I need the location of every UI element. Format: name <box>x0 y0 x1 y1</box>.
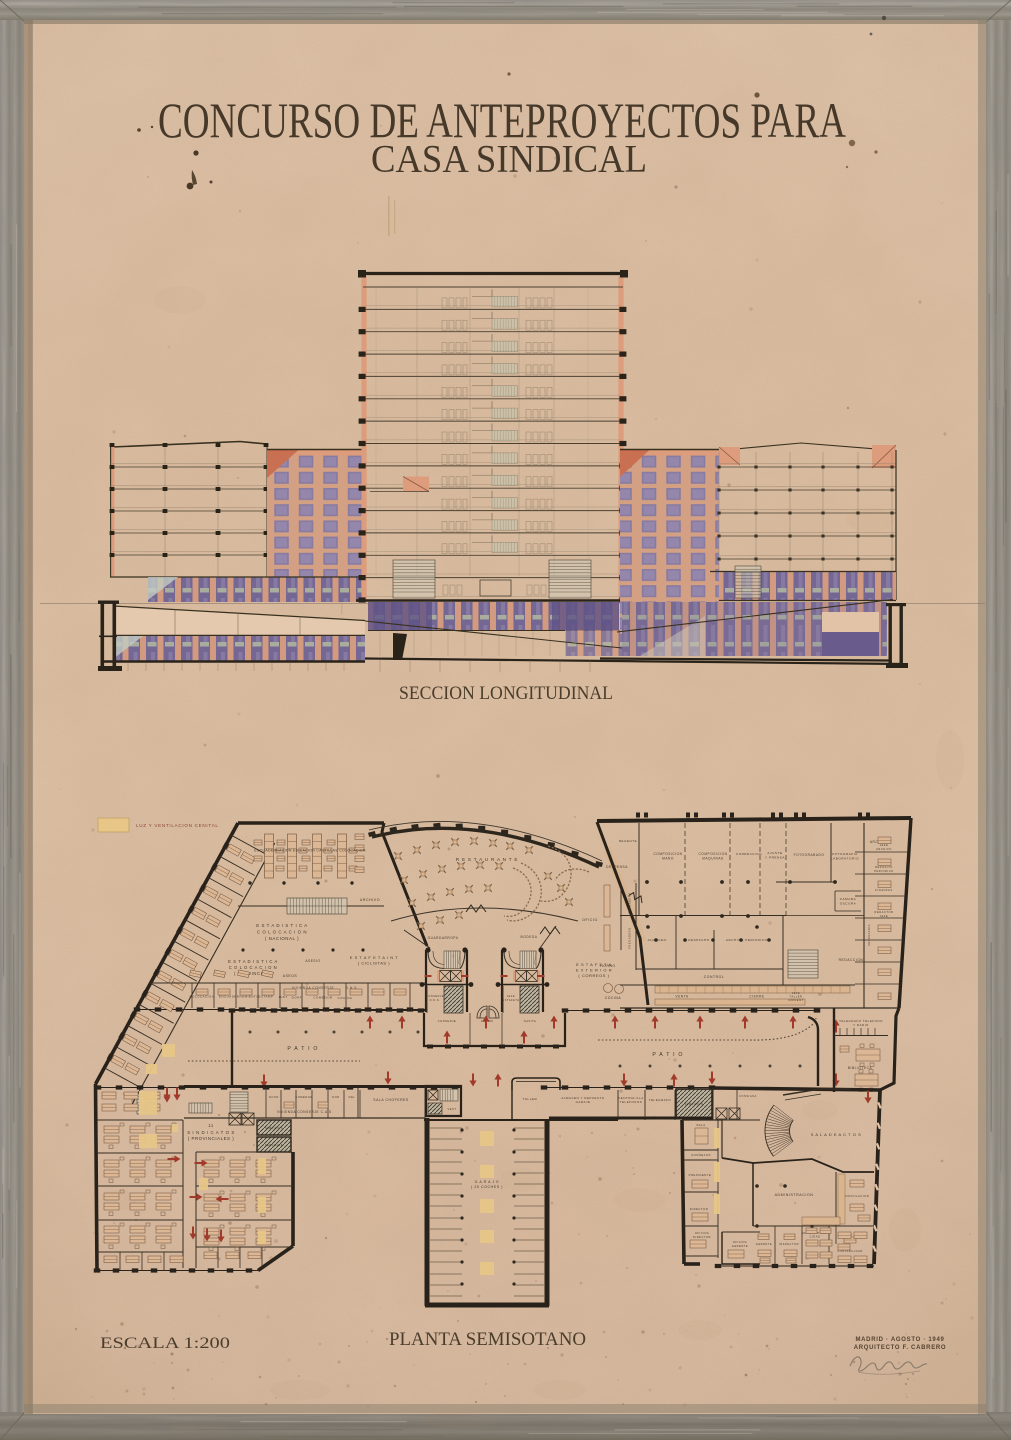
svg-text:OFICINA: OFICINA <box>733 1240 747 1244</box>
svg-text:SALA CHOFERES: SALA CHOFERES <box>373 1098 409 1102</box>
svg-text:TELEFONOS: TELEFONOS <box>620 1100 642 1104</box>
svg-text:P A T I O: P A T I O <box>652 1052 683 1058</box>
svg-text:DOR: DOR <box>332 1095 339 1099</box>
svg-text:ARQUITECTO F. CABRERO: ARQUITECTO F. CABRERO <box>854 1345 947 1351</box>
svg-text:ESCALA 1:200: ESCALA 1:200 <box>100 1335 230 1352</box>
svg-text:E S T A F E T A: E S T A F E T A <box>576 962 612 967</box>
svg-text:REDACCION: REDACCION <box>839 958 864 962</box>
svg-text:ADMINISTRACION: ADMINISTRACION <box>775 1193 814 1197</box>
svg-text:CIERRE: CIERRE <box>749 995 764 999</box>
svg-text:DIRECTOR: DIRECTOR <box>693 1235 711 1239</box>
svg-text:CIRCULACION: CIRCULACION <box>845 1194 870 1198</box>
svg-text:OFICIO: OFICIO <box>582 918 598 922</box>
svg-text:CASA SINDICAL: CASA SINDICAL <box>371 138 647 181</box>
svg-text:DEPOSITO: DEPOSITO <box>875 865 893 869</box>
svg-text:TALLER: TALLER <box>523 1097 538 1101</box>
svg-text:SERVICIOS: SERVICIOS <box>684 1102 703 1106</box>
svg-text:JEFE: JEFE <box>507 995 515 998</box>
svg-text:OSCURA: OSCURA <box>840 901 857 905</box>
svg-text:C O L O C A C I O N: C O L O C A C I O N <box>229 965 277 970</box>
svg-text:FREGADERO: FREGADERO <box>628 927 632 948</box>
svg-text:ESTAFETA: ESTAFETA <box>503 999 520 1002</box>
svg-text:CONTROL: CONTROL <box>704 975 724 979</box>
svg-text:JEFE: JEFE <box>880 843 889 847</box>
svg-text:ESTAMP: ESTAMP <box>259 995 274 999</box>
svg-text:DEL: DEL <box>349 1095 356 1099</box>
svg-text:SERVICIOS: SERVICIOS <box>265 1144 283 1147</box>
svg-text:E S T A F E T A I N T: E S T A F E T A I N T <box>350 955 399 960</box>
svg-text:C O L O C A C I O N: C O L O C A C I O N <box>257 929 307 934</box>
svg-text:REDACTOR: REDACTOR <box>875 910 894 914</box>
svg-text:MADRID · AGOSTO · 1949: MADRID · AGOSTO · 1949 <box>855 1337 944 1343</box>
svg-text:COCINA: COCINA <box>338 996 353 1000</box>
svg-text:MANO: MANO <box>662 856 674 860</box>
svg-text:( CICLISTAS ): ( CICLISTAS ) <box>358 961 391 966</box>
svg-text:LUZ Y VENTILACION CENITAL: LUZ Y VENTILACION CENITAL <box>136 823 219 828</box>
svg-text:ALMACEN: ALMACEN <box>648 938 667 942</box>
svg-text:P A T I O: P A T I O <box>287 1046 318 1052</box>
svg-text:DESPACHO: DESPACHO <box>688 938 710 942</box>
svg-text:INSPECTOR: INSPECTOR <box>779 1242 799 1246</box>
svg-text:FOTOGRAFIA: FOTOGRAFIA <box>832 852 858 856</box>
svg-text:SALA: SALA <box>696 1123 705 1127</box>
svg-text:AJUSTE: AJUSTE <box>767 851 782 855</box>
svg-text:D.N.S.: D.N.S. <box>430 999 441 1002</box>
svg-text:REGENTE: REGENTE <box>619 839 637 843</box>
svg-text:CORRECCION: CORRECCION <box>736 852 762 856</box>
svg-text:DIRECTOR: DIRECTOR <box>690 1207 708 1211</box>
svg-text:11: 11 <box>208 1123 214 1128</box>
svg-text:COMPOSICION: COMPOSICION <box>653 852 682 856</box>
svg-text:COMEDOR: COMEDOR <box>295 1095 312 1099</box>
svg-text:( NACIONAL ): ( NACIONAL ) <box>265 936 299 941</box>
svg-text:COMEDOR: COMEDOR <box>313 996 333 1000</box>
svg-text:GASITA: GASITA <box>524 1019 537 1023</box>
svg-text:ARCHIVO PERIODICOS: ARCHIVO PERIODICOS <box>726 938 770 942</box>
svg-text:OFICINA: OFICINA <box>695 1231 709 1235</box>
svg-text:JEFE: JEFE <box>880 914 889 918</box>
svg-text:MAQUINAS: MAQUINAS <box>702 856 723 860</box>
svg-text:G A R A J E: G A R A J E <box>475 1180 500 1184</box>
svg-text:CONSIGNA: CONSIGNA <box>739 1095 757 1098</box>
svg-text:E X T E R I O R: E X T E R I O R <box>576 968 612 973</box>
svg-text:E S T A D I S T I C A: E S T A D I S T I C A <box>256 923 308 928</box>
svg-text:SECRETARIA: SECRETARIA <box>867 924 871 946</box>
svg-text:JEFE: JEFE <box>792 991 801 995</box>
svg-text:R E S T A U R A N T E: R E S T A U R A N T E <box>456 857 518 862</box>
svg-text:DORT: DORT <box>292 996 303 1000</box>
svg-text:TELEGRAFO: TELEGRAFO <box>649 1098 672 1102</box>
svg-text:S I N D I C A T O S: S I N D I C A T O S <box>187 1130 235 1135</box>
svg-text:TALLER: TALLER <box>790 995 803 999</box>
svg-text:Y RADIO: Y RADIO <box>853 1023 869 1027</box>
svg-text:SERVICIOS: SERVICIOS <box>265 1127 283 1130</box>
svg-text:( PROVINCIALES ): ( PROVINCIALES ) <box>188 1136 235 1141</box>
svg-text:FOTOGRABADO: FOTOGRABADO <box>794 853 825 857</box>
svg-text:COCINA: COCINA <box>605 996 622 1000</box>
svg-text:( CORREOS ): ( CORREOS ) <box>578 973 609 978</box>
svg-text:JUST: JUST <box>278 995 287 999</box>
svg-text:DESPENSA: DESPENSA <box>606 865 628 869</box>
svg-text:CAMARA: CAMARA <box>840 897 857 901</box>
svg-text:CIDAD: CIDAD <box>810 1235 821 1239</box>
svg-text:DOOR: DOOR <box>269 1095 279 1099</box>
svg-text:SECCION LONGITUDINAL: SECCION LONGITUDINAL <box>399 683 613 704</box>
svg-text:GARAJE: GARAJE <box>576 1100 591 1104</box>
svg-text:ARCHIVO: ARCHIVO <box>876 847 892 851</box>
svg-text:S A L A D E A C T O S: S A L A D E A C T O S <box>811 1132 862 1137</box>
svg-text:ASESIO: ASESIO <box>305 959 320 963</box>
svg-text:GUARDARROPA: GUARDARROPA <box>428 936 459 940</box>
svg-text:ARCHIVO: ARCHIVO <box>360 898 380 902</box>
svg-text:GERENTE: GERENTE <box>732 1244 748 1248</box>
svg-text:FINANZAS: FINANZAS <box>875 888 892 892</box>
svg-text:COLOCACION: COLOCACION <box>190 995 215 999</box>
svg-text:VIVIENDA CONSERJE: VIVIENDA CONSERJE <box>292 986 334 990</box>
svg-text:E S T A D I S T I C A: E S T A D I S T I C A <box>228 959 278 964</box>
svg-text:( 25 COCHES ): ( 25 COCHES ) <box>471 1185 503 1189</box>
svg-text:VENTA: VENTA <box>675 995 688 999</box>
svg-text:FREGADERA: FREGADERA <box>628 892 632 913</box>
svg-text:PRESIDENTE: PRESIDENTE <box>689 1173 712 1177</box>
svg-text:Y PRENSA: Y PRENSA <box>765 855 785 859</box>
svg-text:D.N.S.: D.N.S. <box>346 986 359 990</box>
svg-text:IMPRENT: IMPRENT <box>788 998 804 1002</box>
svg-text:COMPOSICION: COMPOSICION <box>698 852 727 856</box>
svg-text:VIVIENDA CONSERJE C.A.S.: VIVIENDA CONSERJE C.A.S. <box>277 1110 333 1114</box>
svg-text:PLANTA SEMISOTANO: PLANTA SEMISOTANO <box>389 1329 586 1350</box>
svg-text:LABORATORIO: LABORATORIO <box>831 856 859 860</box>
svg-text:ASEOS: ASEOS <box>283 974 298 978</box>
svg-text:PERIODICO: PERIODICO <box>874 869 894 873</box>
svg-text:CONSERJE: CONSERJE <box>426 995 444 998</box>
svg-text:CONSEJOS: CONSEJOS <box>691 1153 711 1157</box>
svg-text:ENCUADERNAMIENTO: ENCUADERNAMIENTO <box>219 995 259 999</box>
svg-text:ENCUADERNACION EDICACION CAST: ENCUADERNACION EDICACION CASTILLAS COLOC… <box>254 849 366 853</box>
svg-text:VEST: VEST <box>448 1107 457 1111</box>
svg-text:GERENTE: GERENTE <box>756 1242 772 1246</box>
svg-text:CONSERJE: CONSERJE <box>438 1019 457 1023</box>
svg-text:BODEGA: BODEGA <box>521 935 538 939</box>
